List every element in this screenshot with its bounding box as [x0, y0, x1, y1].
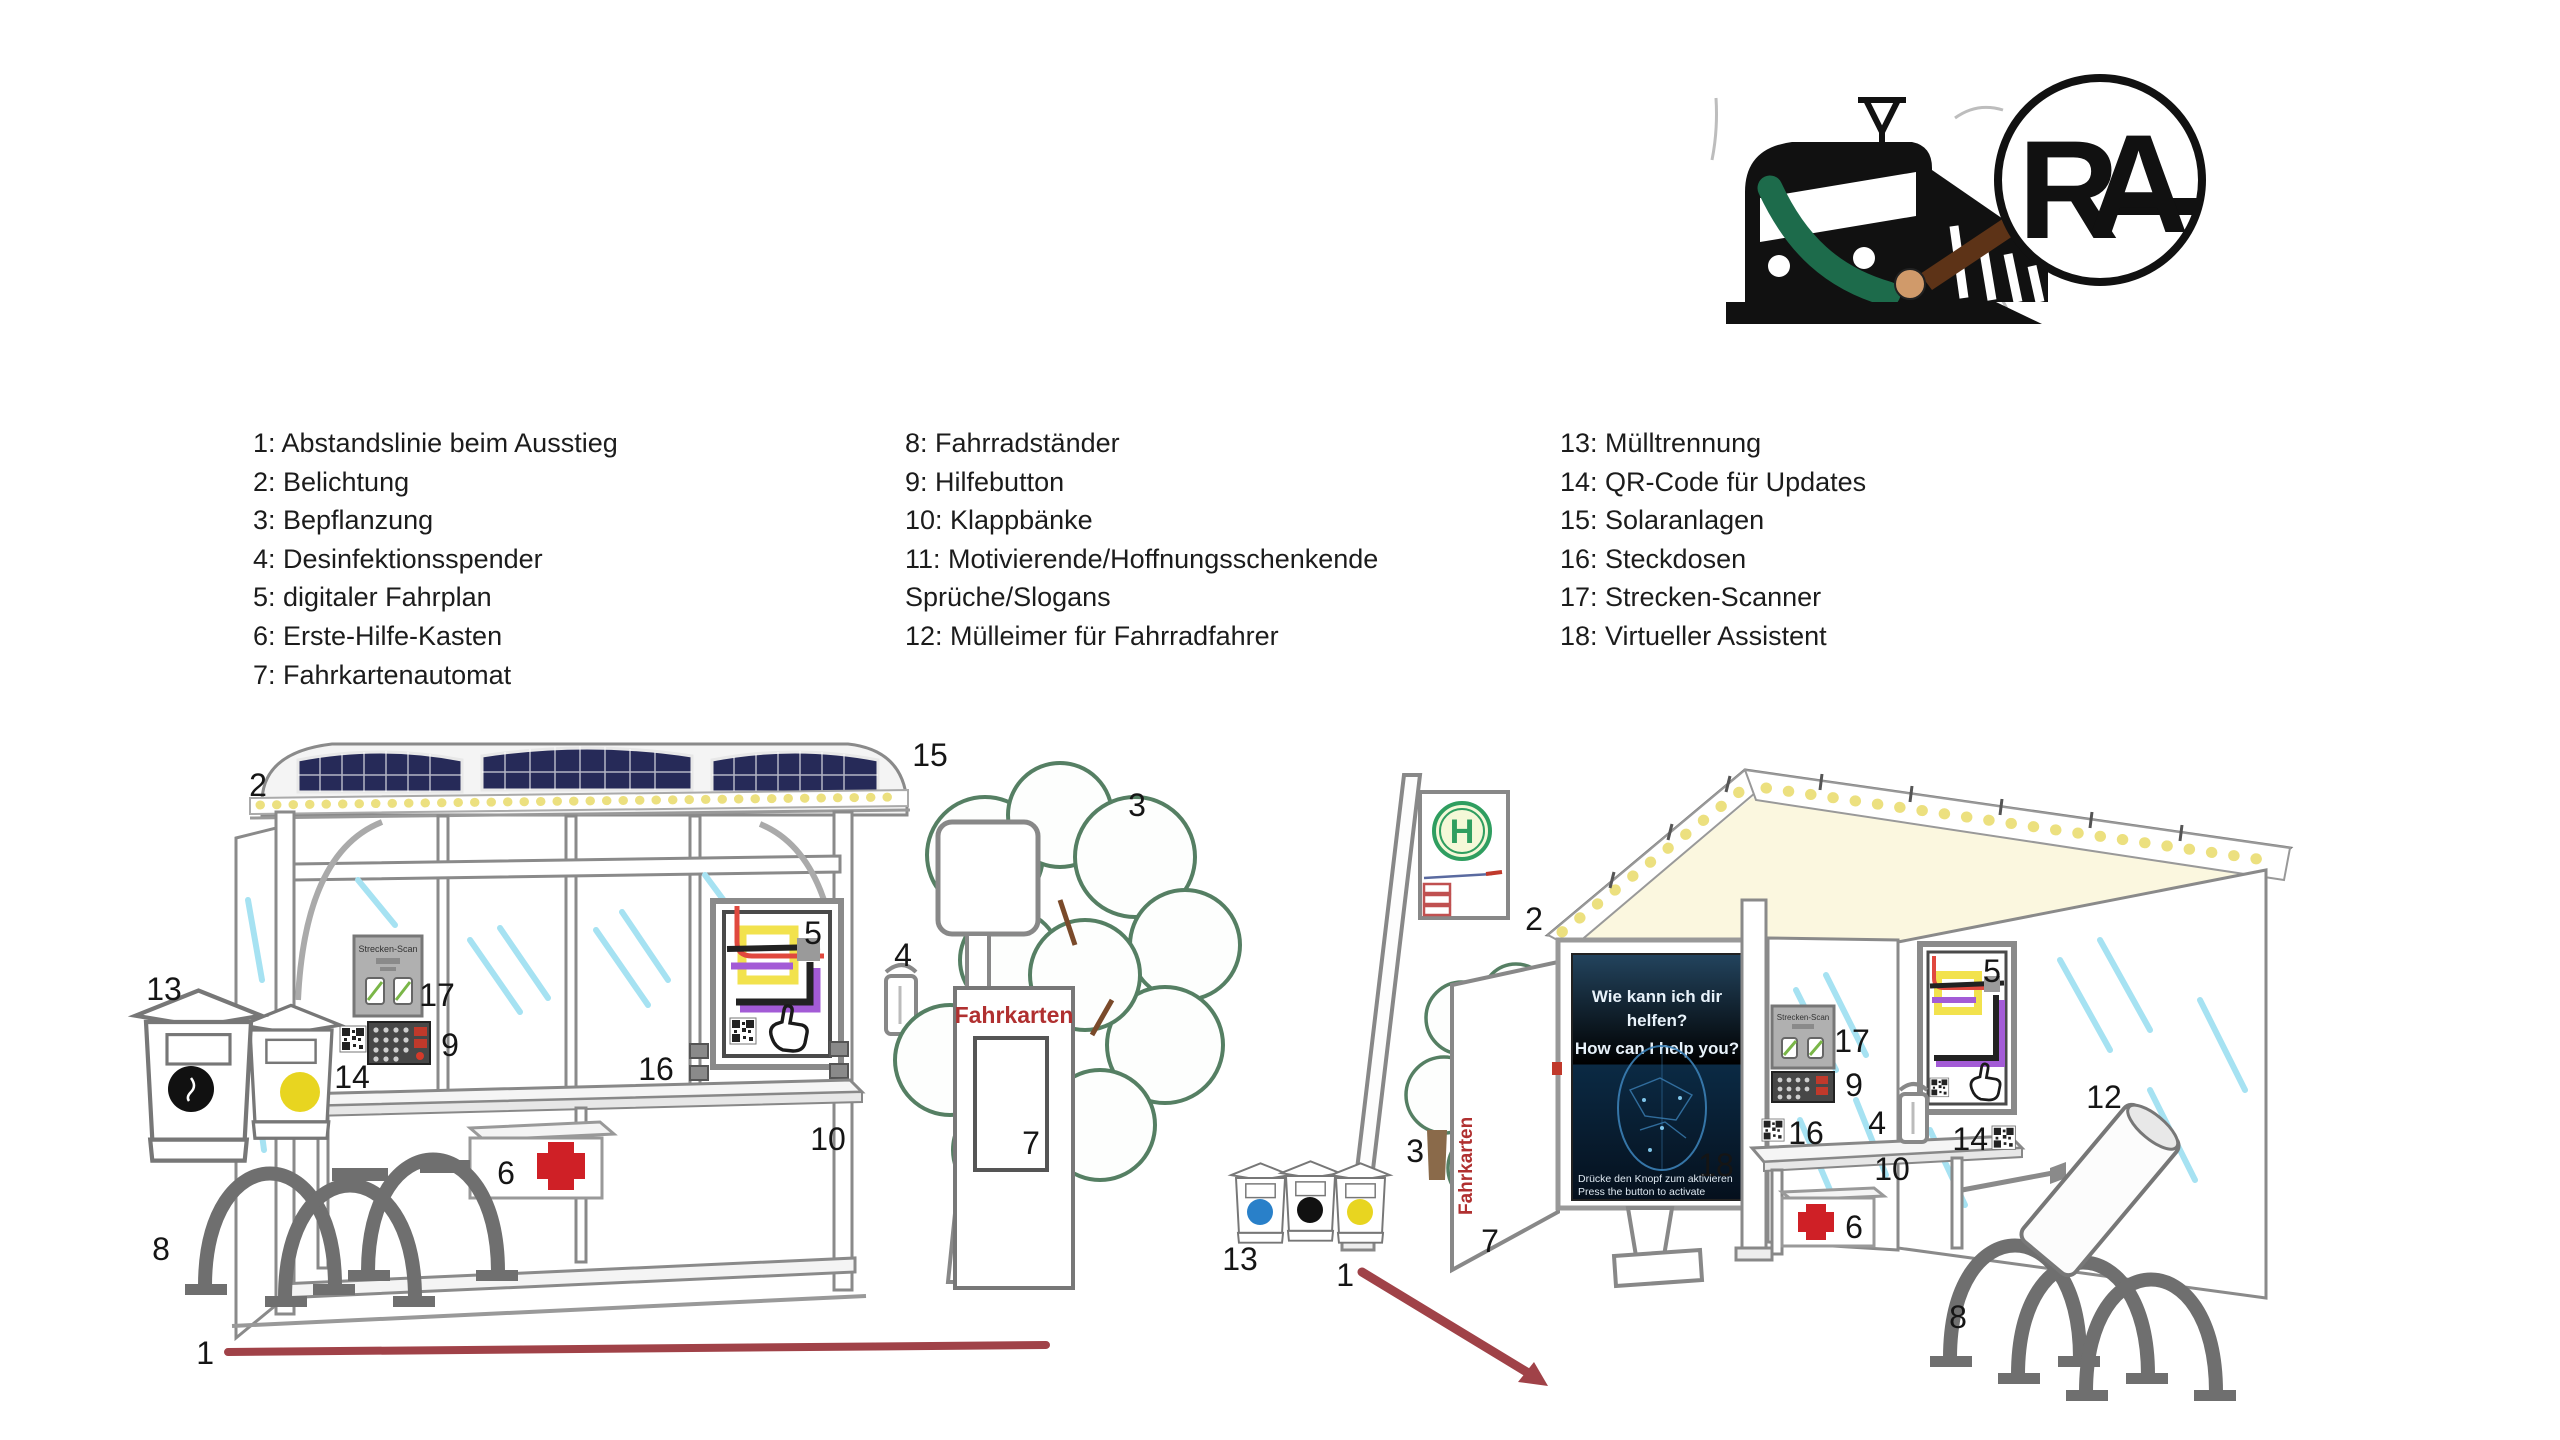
- diagram-page: 1: Abstandslinie beim Ausstieg 2: Belich…: [0, 0, 2560, 1440]
- shelter-post: [1742, 900, 1766, 1252]
- callout-10: 10: [1874, 1151, 1910, 1187]
- pantograph: [1858, 100, 1906, 146]
- callout-3: 3: [1128, 787, 1146, 823]
- callout-13: 13: [1222, 1241, 1258, 1277]
- strecken-scanner-panel: Strecken-Scan: [1772, 1006, 1834, 1068]
- assistant-poster: Wie kann ich dir helfen? How can I help …: [1552, 940, 1755, 1286]
- ticket-kiosk: Fahrkarten: [1452, 962, 1558, 1270]
- callout-15: 15: [912, 737, 948, 773]
- distance-line: [228, 1345, 1046, 1352]
- callout-2: 2: [1525, 901, 1543, 937]
- blue-waste-icon: [1247, 1199, 1273, 1225]
- paintbrush-ferrule: [1895, 269, 1925, 299]
- sanitizer-dispenser: [1900, 1084, 1927, 1142]
- callout-14: 14: [334, 1059, 370, 1095]
- callout-1: 1: [1336, 1257, 1354, 1293]
- waste-bins: [136, 991, 341, 1161]
- yellow-waste-icon: [280, 1072, 320, 1112]
- train-headlight: [1853, 247, 1875, 269]
- qr-code: [1992, 1126, 2015, 1149]
- fahrkarten-text: Fahrkarten: [955, 1002, 1074, 1028]
- black-waste-icon: [1297, 1197, 1323, 1223]
- poster-footer2: Press the button to activate: [1578, 1186, 1705, 1198]
- callout-14: 14: [1952, 1121, 1988, 1157]
- first-aid-kit: [1782, 1188, 1884, 1246]
- qr-code: [730, 1018, 756, 1044]
- callout-16: 16: [1788, 1115, 1824, 1151]
- help-keypad: [1772, 1072, 1834, 1102]
- qr-code: [340, 1026, 366, 1052]
- rag-letter-a: A: [2088, 105, 2189, 262]
- callout-17: 17: [419, 977, 455, 1013]
- callout-2: 2: [249, 767, 267, 803]
- qr-code: [1930, 1078, 1949, 1097]
- callout-8: 8: [1949, 1299, 1967, 1335]
- callout-5: 5: [1983, 953, 2001, 989]
- strecken-scan-text: Strecken-Scan: [1777, 1013, 1829, 1022]
- poster-line3: How can I help you?: [1575, 1039, 1739, 1058]
- activation-button: [1552, 1062, 1562, 1075]
- bus-stop-illustration: R A: [0, 0, 2560, 1440]
- callout-6: 6: [1845, 1209, 1863, 1245]
- distance-arrow-line: [1362, 1272, 1548, 1386]
- black-waste-icon: [168, 1066, 214, 1112]
- help-keypad: [368, 1022, 430, 1064]
- poster-footer1: Drücke den Knopf zum aktivieren: [1578, 1173, 1733, 1185]
- callout-9: 9: [1845, 1067, 1863, 1103]
- strecken-scan-text: Strecken-Scan: [358, 944, 417, 954]
- callout-1: 1: [196, 1335, 214, 1371]
- callout-12: 12: [2086, 1079, 2122, 1115]
- callout-17: 17: [1834, 1023, 1870, 1059]
- callout-4: 4: [894, 937, 912, 973]
- socket-qr-panel: [1762, 1119, 1784, 1141]
- callout-6: 6: [497, 1155, 515, 1191]
- help-button: [1816, 1076, 1828, 1084]
- train-headlight: [1768, 255, 1790, 277]
- poster-line2: helfen?: [1627, 1011, 1687, 1030]
- shelter-top-rail: [294, 856, 840, 880]
- callout-3: 3: [1406, 1133, 1424, 1169]
- callout-4: 4: [1868, 1105, 1886, 1141]
- help-button: [414, 1027, 427, 1036]
- callout-16: 16: [638, 1051, 674, 1087]
- yellow-waste-icon: [1347, 1199, 1373, 1225]
- callout-13: 13: [146, 971, 182, 1007]
- callout-10: 10: [810, 1121, 846, 1157]
- callout-7: 7: [1481, 1223, 1499, 1259]
- rag-monogram-logo: R A: [1998, 78, 2202, 282]
- callout-7: 7: [1022, 1125, 1040, 1161]
- poster-line1: Wie kann ich dir: [1592, 987, 1723, 1006]
- fahrkarten-vertical-text: Fahrkarten: [1456, 1117, 1477, 1215]
- poster-pedestal: [1628, 1208, 1672, 1256]
- callout-9: 9: [441, 1027, 459, 1063]
- train-base: [1726, 302, 2042, 324]
- callout-8: 8: [152, 1231, 170, 1267]
- tree-trunk: [1427, 1130, 1447, 1180]
- h-sign-letter: H: [1450, 813, 1475, 851]
- first-aid-kit: [470, 1122, 614, 1198]
- callout-5: 5: [804, 915, 822, 951]
- waste-bins: [1231, 1161, 1390, 1242]
- strecken-scanner-panel: Strecken-Scan: [354, 936, 422, 1016]
- ticket-machine: Fahrkarten: [955, 988, 1074, 1288]
- solar-panels: [298, 746, 878, 792]
